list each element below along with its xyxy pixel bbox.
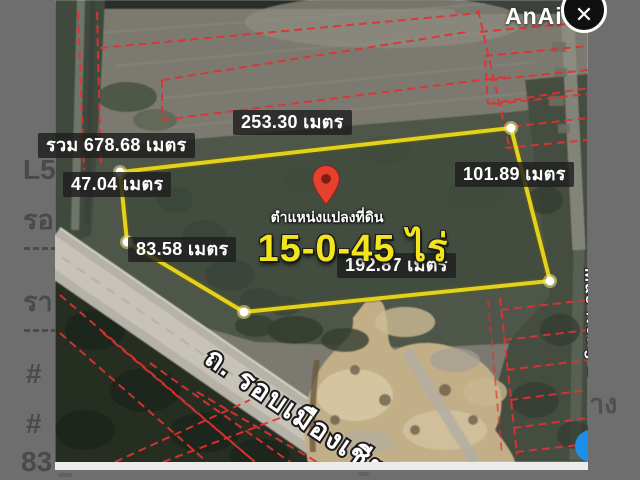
watermark-text: AnAi — [505, 3, 563, 30]
close-icon: ✕ — [575, 2, 593, 28]
plot-area-text: 15-0-45 ไร่ — [238, 217, 468, 278]
page-smudge — [358, 472, 369, 476]
background-text-fragment: 83 — [21, 446, 52, 478]
map-pin-icon — [311, 163, 341, 212]
background-text-fragment: # — [26, 358, 42, 390]
measurement-label-lower-left-edge: 83.58 เมตร — [128, 237, 236, 262]
page-smudge — [58, 473, 72, 477]
measurement-label-right-edge: 101.89 เมตร — [455, 162, 574, 187]
background-text-fragment: # — [26, 408, 42, 440]
background-text-fragment: าง — [589, 382, 617, 425]
background-text-fragment: L5 — [23, 154, 56, 186]
measurement-label-top-edge: 253.30 เมตร — [233, 110, 352, 135]
measurement-label-upper-left-edge: 47.04 เมตร — [63, 172, 171, 197]
measurement-label-total: รวม 678.68 เมตร — [38, 133, 195, 158]
